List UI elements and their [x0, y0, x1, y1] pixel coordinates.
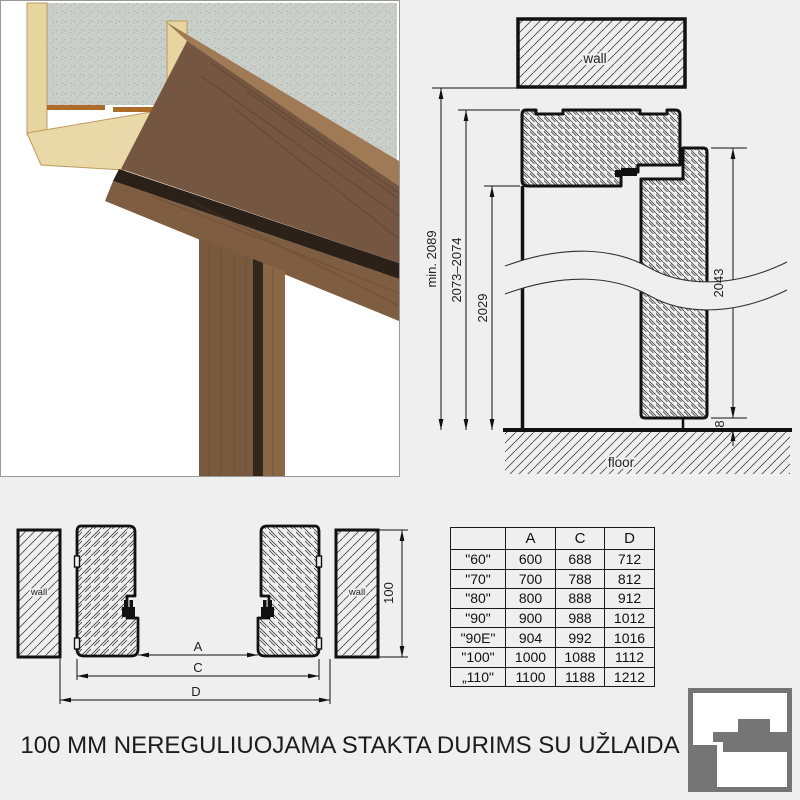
wall-left-label: wall [30, 587, 47, 598]
table-header-cell: A [506, 528, 556, 550]
table-cell: 988 [556, 608, 605, 628]
table-cell: "60" [451, 550, 506, 570]
table-cell: 600 [506, 550, 556, 570]
frame-jamb-left [75, 526, 139, 656]
table-cell: 1188 [556, 667, 605, 687]
table-row: "100"100010881112 [451, 647, 655, 667]
spec-table: ACD"60"600688712"70"700788812"80"8008889… [450, 527, 655, 687]
page-title: 100 MM NEREGULIUOJAMA STAKTA DURIMS SU U… [0, 732, 700, 760]
table-cell: "90" [451, 608, 506, 628]
table-cell: 1012 [605, 608, 655, 628]
table-cell: 700 [506, 569, 556, 589]
table-cell: 1016 [605, 628, 655, 648]
dim-depth-label: 100 [381, 582, 396, 604]
table-row: „110"110011881212 [451, 667, 655, 687]
table-cell: 788 [556, 569, 605, 589]
table-cell: 912 [605, 589, 655, 609]
dim-frame-label: 2073–2074 [449, 237, 464, 302]
table-header-cell [451, 528, 506, 550]
table-cell: 1100 [506, 667, 556, 687]
table-row: "80"800888912 [451, 589, 655, 609]
wall-right-label: wall [348, 587, 365, 598]
table-cell: "90E" [451, 628, 506, 648]
table-cell: 992 [556, 628, 605, 648]
table-cell: „110" [451, 667, 506, 687]
table-header-cell: C [556, 528, 605, 550]
dim-c-label: C [193, 660, 202, 675]
logo-corner-block [693, 745, 717, 790]
dimension-lines-left [432, 88, 520, 430]
table-header-cell: D [605, 528, 655, 550]
table-cell: 1112 [605, 647, 655, 667]
table-row: "90E"9049921016 [451, 628, 655, 648]
horizontal-section-drawing: wall wall A C D 100 [10, 520, 420, 715]
dim-opening-label: 2029 [475, 294, 490, 323]
dim-floor-gap-label: 8 [712, 420, 727, 427]
door-frame-3d-render [1, 1, 399, 476]
table-cell: 712 [605, 550, 655, 570]
table-cell: 812 [605, 569, 655, 589]
dim-a-label: A [194, 639, 203, 654]
table-cell: "80" [451, 589, 506, 609]
floor [503, 430, 792, 474]
table-cell: 888 [556, 589, 605, 609]
table-cell: 1000 [506, 647, 556, 667]
table-cell: 800 [506, 589, 556, 609]
table-cell: "100" [451, 647, 506, 667]
table-cell: 1088 [556, 647, 605, 667]
wall-label: wall [582, 51, 606, 66]
table-cell: 1212 [605, 667, 655, 687]
table-cell: 900 [506, 608, 556, 628]
table-row: "90"9009881012 [451, 608, 655, 628]
floor-label: floor [608, 455, 635, 470]
dim-total-label: min. 2089 [425, 230, 439, 287]
table-cell: "70" [451, 569, 506, 589]
dim-leaf-label: 2043 [711, 269, 726, 298]
wood-vertical-jamb [199, 237, 285, 476]
table-cell: 688 [556, 550, 605, 570]
frame-head-profile [522, 110, 680, 186]
table-row: "70"700788812 [451, 569, 655, 589]
dim-d-label: D [191, 684, 200, 699]
render-3d-panel [0, 0, 400, 477]
frame-profile-logo [686, 686, 794, 794]
frame-jamb-right [258, 526, 322, 656]
vertical-section-drawing: wall min. 2089 2073–2074 2029 [425, 10, 795, 490]
table-cell: 904 [506, 628, 556, 648]
table-row: "60"600688712 [451, 550, 655, 570]
